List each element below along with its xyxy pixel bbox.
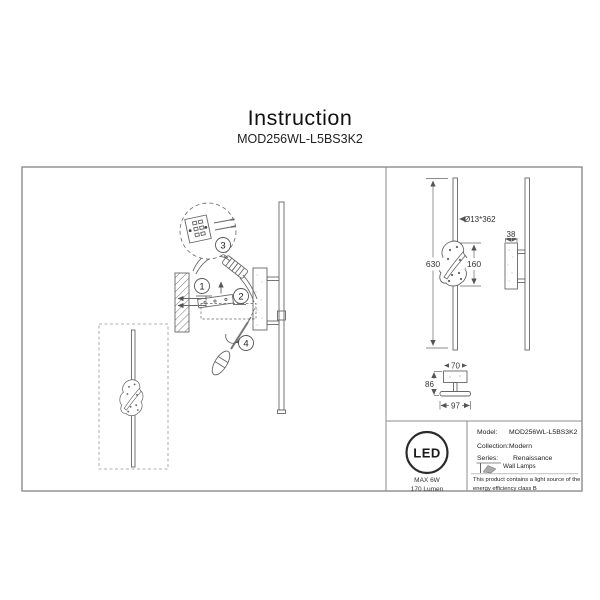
energy-efficiency-note: This product contains a light source of …: [473, 476, 581, 493]
collection-row-value: Modern: [509, 444, 532, 451]
lamp-rod-side: [278, 202, 286, 414]
model-row-label: Model:: [477, 430, 497, 437]
dim-86-label: 86: [425, 380, 434, 389]
step-1-number: 1: [199, 282, 204, 293]
dim-97-label: 97: [451, 402, 460, 411]
dim-tube-label: Ø13*362: [464, 215, 496, 224]
step-2-badge: 2: [234, 289, 249, 304]
collection-row-label: Collection:: [477, 444, 509, 451]
dim-base-width: 97: [440, 401, 471, 411]
dim-630-label: 630: [426, 259, 440, 269]
dim-bracket-height: 86: [424, 372, 443, 396]
dim-38-label: 38: [507, 230, 516, 239]
max-power-label: MAX 6W: [414, 477, 441, 484]
step-4-badge: 4: [239, 336, 254, 351]
instruction-sheet: Instruction MOD256WL-L5BS3K2: [0, 0, 600, 600]
step-1-badge: 1: [195, 279, 210, 294]
dim-depth: 38: [504, 230, 519, 243]
connector-plug: [222, 255, 249, 279]
model-row-value: MOD256WL-L5BS3K2: [509, 430, 577, 437]
bracket-bottom-view: [440, 371, 471, 396]
bracket-outline-dashed: [201, 304, 256, 320]
step-4-number: 4: [243, 339, 248, 350]
lamp-front-view-small: [120, 330, 143, 467]
category-value: Wall Lamps: [503, 464, 536, 470]
step-3-badge: 3: [216, 238, 231, 253]
wall-lamp-icon: [483, 466, 496, 474]
led-badge: LED MAX 6W 170 Lumen: [407, 432, 448, 493]
step-3-number: 3: [220, 241, 225, 252]
dim-70-label: 70: [451, 362, 460, 371]
step-2-number: 2: [238, 292, 243, 303]
luminous-flux-label: 170 Lumen: [411, 486, 444, 493]
dimension-drawings: 630 Ø13*362 160: [423, 178, 530, 411]
series-row-value: Renaissance: [513, 456, 552, 463]
lamp-side-view: [505, 178, 530, 350]
technical-drawing-canvas: 1 2 3 4: [0, 0, 600, 600]
dim-tube: Ø13*362: [460, 215, 497, 224]
led-logo-text: LED: [413, 446, 441, 461]
installation-diagram: [99, 202, 286, 469]
dim-bracket-width: 70: [445, 361, 467, 371]
dim-160-label: 160: [467, 259, 481, 269]
wall-section: [175, 273, 189, 332]
series-row-label: Series:: [477, 456, 498, 463]
